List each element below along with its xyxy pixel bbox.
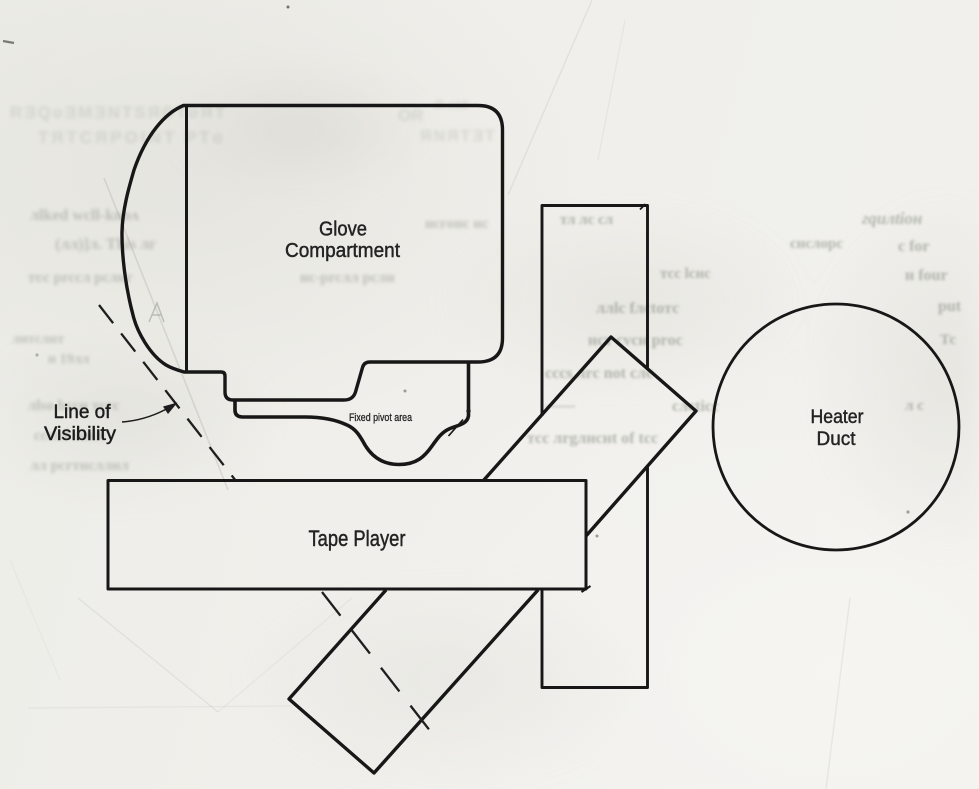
- svg-text:Heater: Heater: [811, 407, 865, 428]
- svg-text:Glove: Glove: [319, 219, 367, 241]
- svg-text:Line of: Line of: [54, 402, 112, 423]
- svg-text:Duct: Duct: [817, 429, 857, 450]
- svg-text:Tape Player: Tape Player: [309, 526, 406, 551]
- svg-text:Visibility: Visibility: [44, 424, 117, 445]
- svg-text:Compartment: Compartment: [285, 240, 400, 262]
- svg-text:Fixed pivot area: Fixed pivot area: [349, 412, 413, 424]
